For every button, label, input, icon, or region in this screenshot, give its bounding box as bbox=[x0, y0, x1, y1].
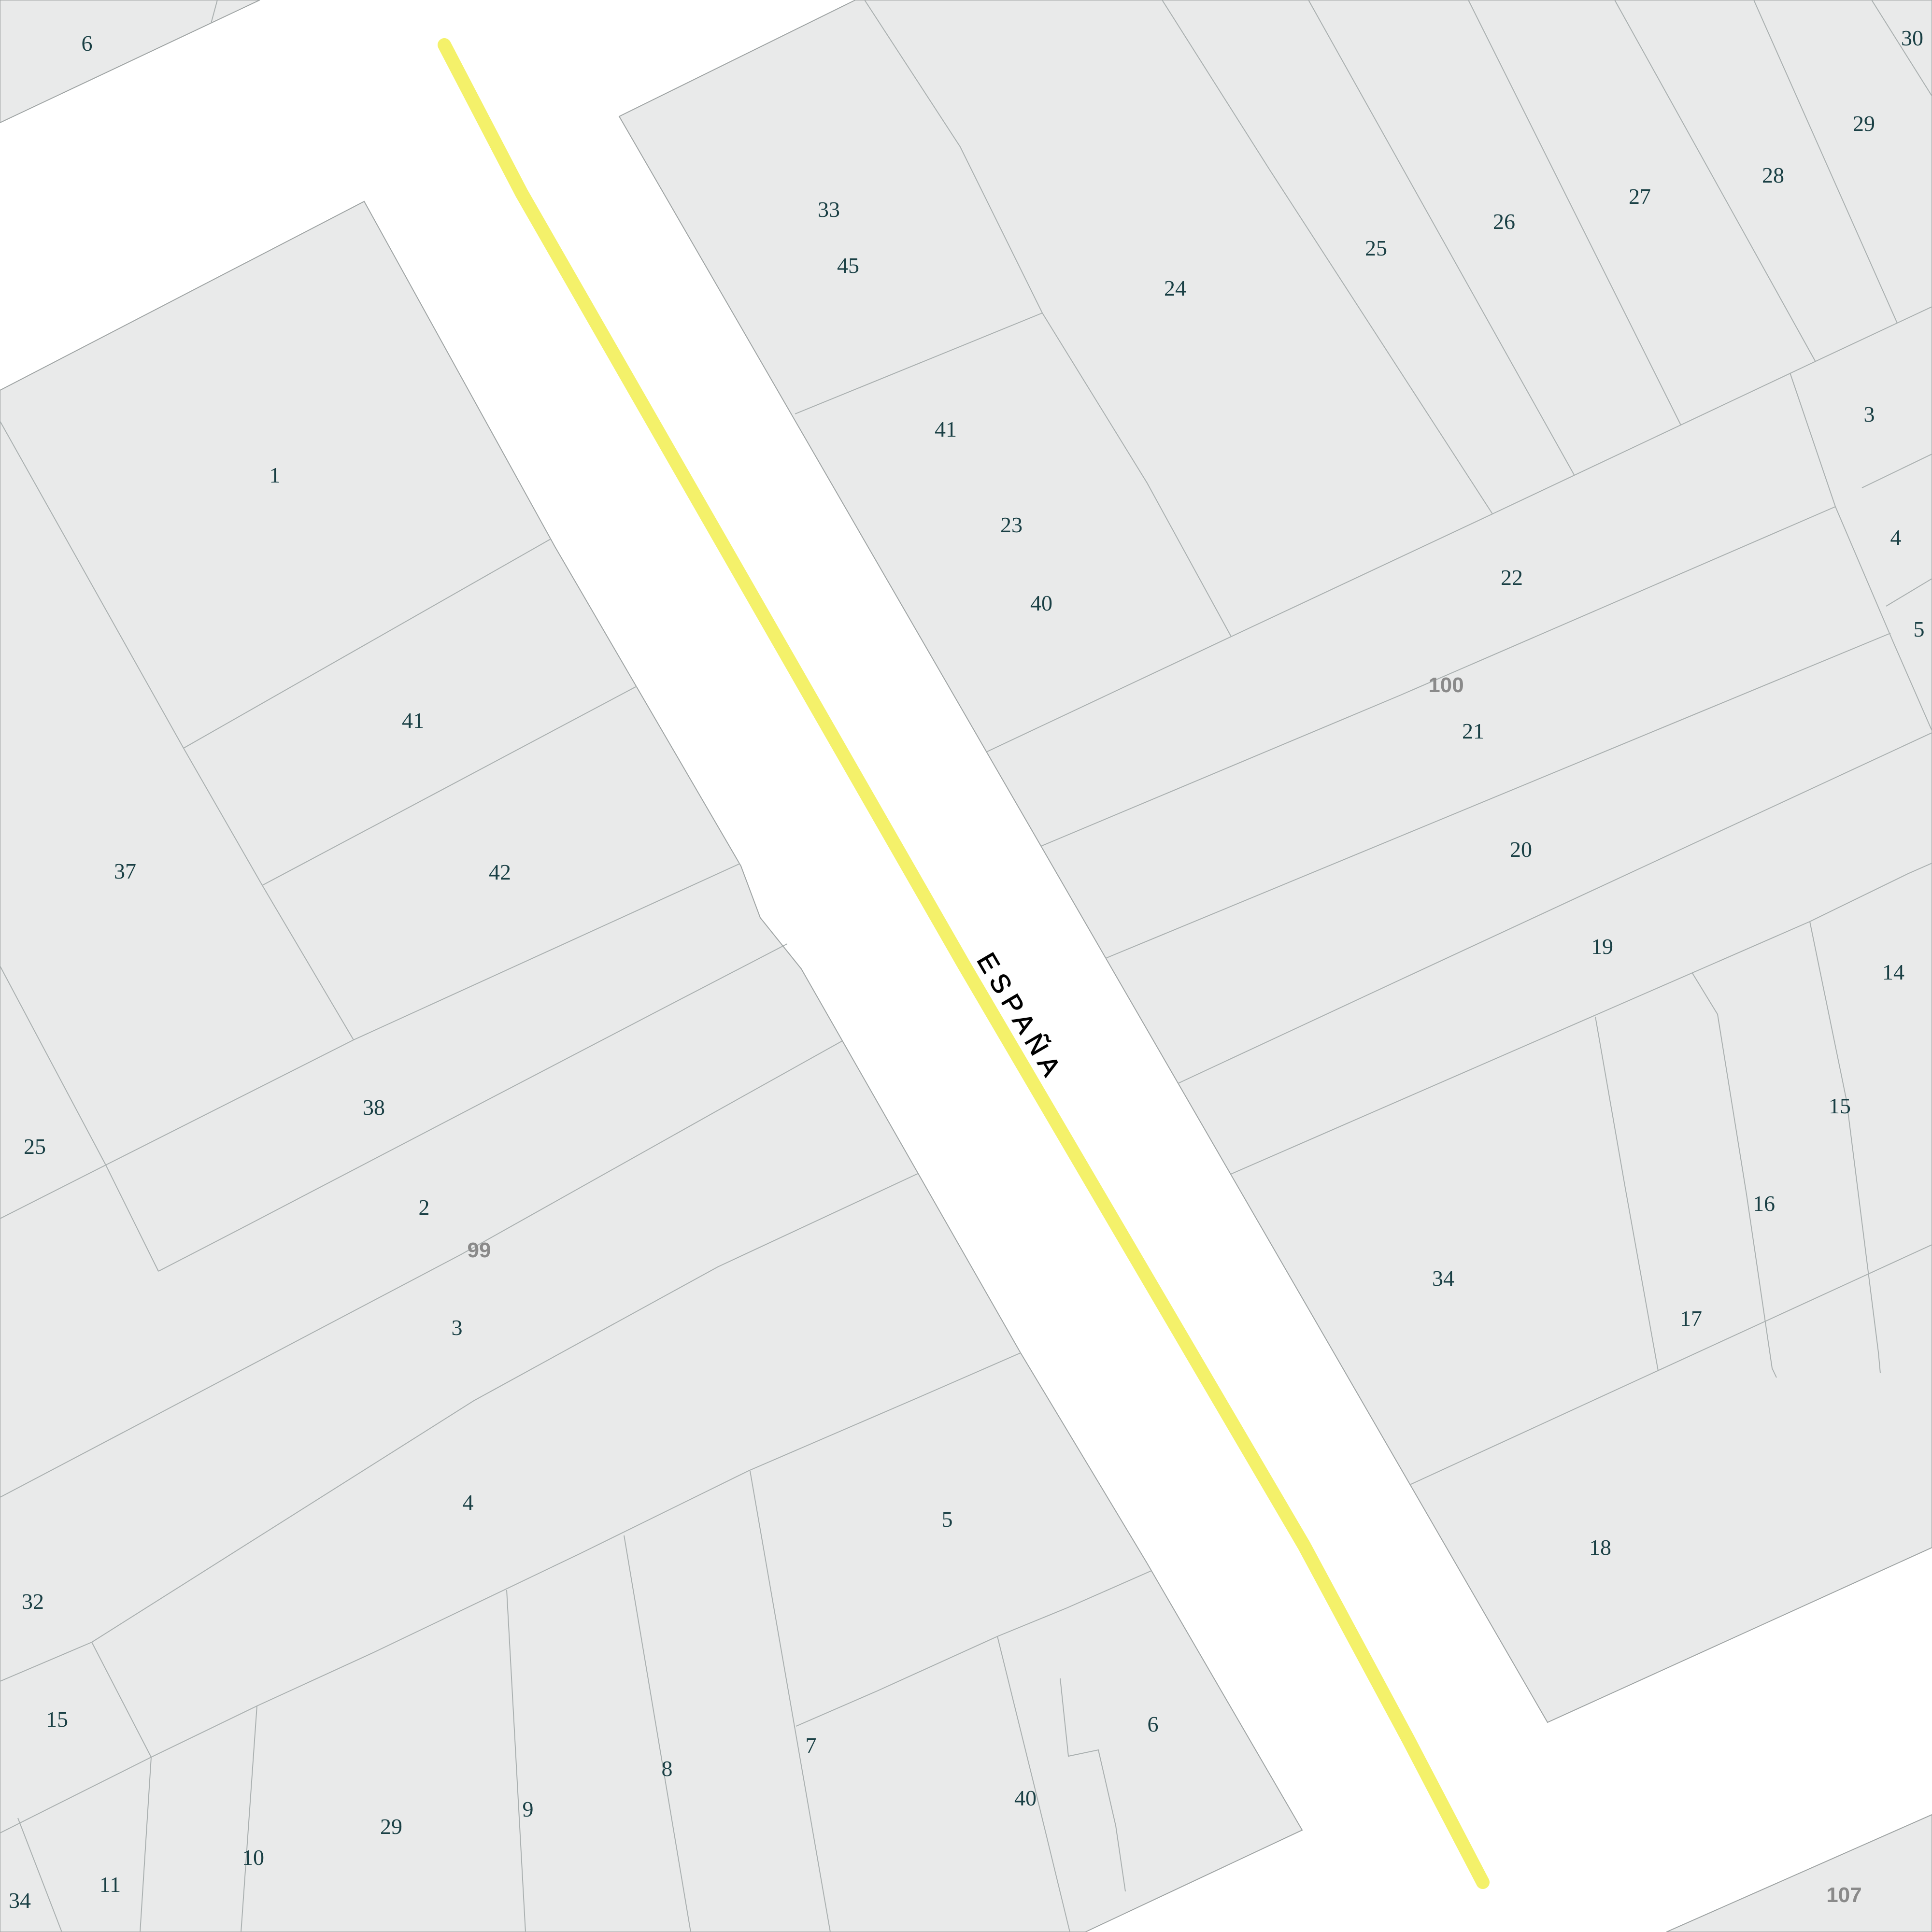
svg-text:4: 4 bbox=[1890, 525, 1902, 550]
svg-text:15: 15 bbox=[1829, 1094, 1851, 1118]
svg-text:107: 107 bbox=[1826, 1883, 1861, 1907]
svg-text:33: 33 bbox=[818, 197, 840, 222]
svg-text:5: 5 bbox=[1914, 617, 1925, 641]
svg-text:28: 28 bbox=[1762, 163, 1784, 187]
svg-text:24: 24 bbox=[1164, 276, 1186, 300]
svg-text:42: 42 bbox=[489, 860, 511, 884]
svg-text:23: 23 bbox=[1000, 512, 1023, 537]
svg-text:6: 6 bbox=[82, 31, 93, 56]
svg-text:25: 25 bbox=[1365, 236, 1387, 260]
svg-text:22: 22 bbox=[1501, 565, 1523, 590]
svg-text:29: 29 bbox=[380, 1814, 402, 1839]
svg-text:25: 25 bbox=[24, 1134, 46, 1159]
svg-text:45: 45 bbox=[837, 253, 859, 278]
svg-text:16: 16 bbox=[1753, 1191, 1775, 1216]
svg-text:5: 5 bbox=[942, 1507, 953, 1532]
svg-text:40: 40 bbox=[1014, 1786, 1037, 1810]
svg-text:20: 20 bbox=[1510, 837, 1532, 862]
svg-text:10: 10 bbox=[242, 1845, 264, 1870]
svg-text:32: 32 bbox=[22, 1589, 44, 1614]
svg-text:3: 3 bbox=[1864, 402, 1875, 426]
svg-text:19: 19 bbox=[1591, 934, 1613, 959]
svg-text:26: 26 bbox=[1493, 209, 1515, 234]
svg-text:99: 99 bbox=[468, 1238, 491, 1262]
svg-text:18: 18 bbox=[1589, 1535, 1611, 1560]
svg-text:11: 11 bbox=[99, 1872, 121, 1897]
svg-text:100: 100 bbox=[1428, 673, 1463, 697]
svg-text:7: 7 bbox=[806, 1733, 817, 1758]
svg-text:37: 37 bbox=[114, 859, 136, 883]
svg-text:38: 38 bbox=[363, 1095, 385, 1120]
svg-text:21: 21 bbox=[1462, 719, 1484, 743]
svg-text:8: 8 bbox=[662, 1756, 673, 1781]
svg-text:9: 9 bbox=[523, 1797, 534, 1821]
svg-text:34: 34 bbox=[9, 1888, 31, 1913]
svg-text:14: 14 bbox=[1882, 960, 1904, 984]
svg-text:4: 4 bbox=[463, 1490, 474, 1515]
svg-text:2: 2 bbox=[419, 1195, 430, 1220]
svg-text:41: 41 bbox=[935, 417, 957, 441]
svg-text:3: 3 bbox=[452, 1315, 463, 1340]
svg-text:40: 40 bbox=[1030, 591, 1052, 615]
svg-text:41: 41 bbox=[402, 708, 424, 733]
svg-text:27: 27 bbox=[1629, 184, 1651, 209]
svg-text:17: 17 bbox=[1680, 1306, 1702, 1331]
svg-text:30: 30 bbox=[1901, 26, 1923, 50]
svg-text:1: 1 bbox=[270, 463, 281, 487]
svg-text:29: 29 bbox=[1853, 111, 1875, 136]
svg-text:6: 6 bbox=[1148, 1712, 1159, 1736]
svg-text:34: 34 bbox=[1432, 1266, 1454, 1291]
svg-text:15: 15 bbox=[46, 1707, 68, 1732]
